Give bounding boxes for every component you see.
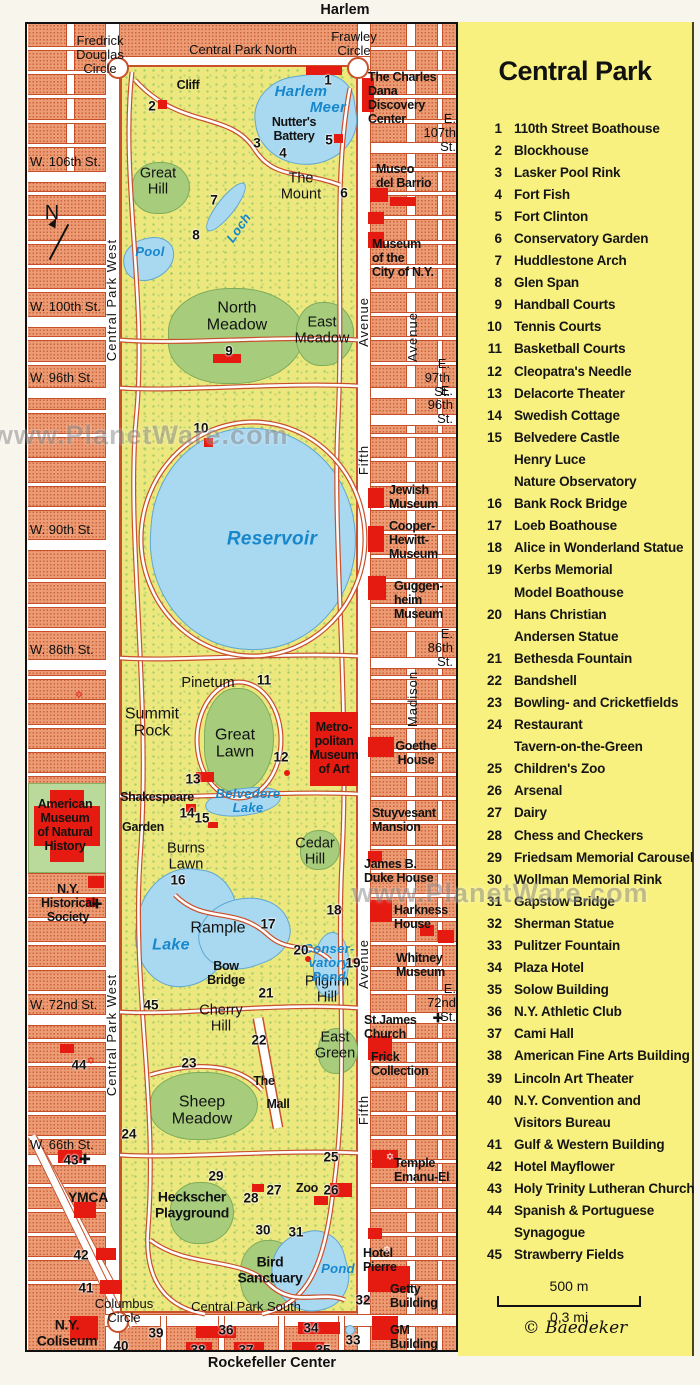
legend-item: 27Dairy bbox=[472, 802, 686, 824]
legend-item-number: 33 bbox=[472, 938, 502, 953]
planetware-watermark: www.PlanetWare.com bbox=[0, 420, 289, 451]
cross-street-east bbox=[371, 387, 456, 399]
legend-item-number: 42 bbox=[472, 1159, 502, 1174]
legend-item-label: Andersen Statue bbox=[514, 629, 618, 644]
poi-number-marker: 29 bbox=[208, 1169, 223, 1184]
cross-street-west bbox=[28, 336, 106, 341]
legend-item: 12Cleopatra's Needle bbox=[472, 360, 686, 382]
cross-street-west bbox=[28, 288, 106, 293]
legend-item-continuation: Visitors Bureau bbox=[472, 1111, 686, 1133]
cross-street-west bbox=[28, 699, 106, 704]
cross-street-west bbox=[28, 1111, 106, 1116]
cross-street-west bbox=[28, 1014, 106, 1026]
legend-item: 28Chess and Checkers bbox=[472, 824, 686, 846]
legend-item-label: Henry Luce bbox=[514, 452, 586, 467]
red-building bbox=[158, 100, 167, 109]
legend-item-label: Dairy bbox=[514, 805, 547, 820]
cross-street-east bbox=[371, 772, 456, 777]
legend-item-label: Tennis Courts bbox=[514, 319, 601, 334]
red-building bbox=[50, 790, 84, 862]
poi-number-marker: 28 bbox=[243, 1191, 258, 1206]
poi-number-marker: 6 bbox=[340, 186, 348, 201]
cross-street-west bbox=[28, 1280, 106, 1285]
legend-item-label: Model Boathouse bbox=[514, 585, 624, 600]
poi-number-marker: 18 bbox=[326, 903, 341, 918]
cross-street-west bbox=[28, 1135, 106, 1140]
legend-item-number: 27 bbox=[472, 805, 502, 820]
cross-street-west bbox=[28, 748, 106, 753]
legend-item-label: Huddlestone Arch bbox=[514, 253, 627, 268]
poi-number-marker: 38 bbox=[190, 1343, 205, 1353]
legend-item-label: Alice in Wonderland Statue bbox=[514, 540, 683, 555]
poi-number-marker: 7 bbox=[210, 193, 218, 208]
cross-street-east bbox=[371, 94, 456, 99]
planetware-watermark: www.PlanetWare.com bbox=[352, 878, 649, 909]
cross-street-east bbox=[371, 554, 456, 559]
cross-street-east bbox=[371, 288, 456, 293]
legend-item-label: Spanish & Portuguese bbox=[514, 1203, 654, 1218]
cross-street-east bbox=[371, 724, 456, 729]
cross-street-west bbox=[28, 966, 106, 971]
legend-item: 40N.Y. Convention and bbox=[472, 1089, 686, 1111]
legend-item-number: 9 bbox=[472, 297, 502, 312]
legend-item-number: 20 bbox=[472, 607, 502, 622]
legend-item-list: 1110th Street Boathouse2Blockhouse3Laske… bbox=[472, 117, 686, 1266]
legend-item-label: Arsenal bbox=[514, 783, 562, 798]
legend-item-number: 25 bbox=[472, 761, 502, 776]
church-cross-icon: ✚ bbox=[433, 1012, 444, 1025]
legend-item: 41Gulf & Western Building bbox=[472, 1133, 686, 1155]
legend-item-number: 3 bbox=[472, 165, 502, 180]
legend-item: 33Pulitzer Fountain bbox=[472, 934, 686, 956]
legend-item-number: 19 bbox=[472, 562, 502, 577]
cross-street-west bbox=[28, 772, 106, 777]
poi-number-marker: 44 bbox=[71, 1058, 86, 1073]
cross-street-west bbox=[28, 1038, 106, 1043]
south-block-street bbox=[278, 1316, 285, 1350]
legend-item: 16Bank Rock Bridge bbox=[472, 493, 686, 515]
legend-item-number: 15 bbox=[472, 430, 502, 445]
legend-item: 36N.Y. Athletic Club bbox=[472, 1001, 686, 1023]
legend-item-label: Conservatory Garden bbox=[514, 231, 648, 246]
legend-item-number: 32 bbox=[472, 916, 502, 931]
cross-street-east bbox=[371, 361, 456, 366]
legend-item-number: 1 bbox=[472, 121, 502, 136]
legend-item-label: Glen Span bbox=[514, 275, 579, 290]
cross-street-west bbox=[28, 240, 106, 245]
cross-street-east bbox=[371, 845, 456, 850]
red-building bbox=[368, 1228, 382, 1239]
legend-item: 7Huddlestone Arch bbox=[472, 250, 686, 272]
poi-number-marker: 9 bbox=[225, 344, 233, 359]
madison-avenue bbox=[406, 24, 416, 1350]
legend-item: 6Conservatory Garden bbox=[472, 227, 686, 249]
legend-item-label: Synagogue bbox=[514, 1225, 585, 1240]
legend-item-number: 24 bbox=[472, 717, 502, 732]
cross-street-west bbox=[28, 724, 106, 729]
legend-item-label: Strawberry Fields bbox=[514, 1247, 624, 1262]
red-building bbox=[368, 576, 386, 600]
cross-street-east bbox=[371, 414, 456, 426]
cross-street-west bbox=[28, 1183, 106, 1188]
cross-street-east bbox=[371, 796, 456, 801]
red-building bbox=[60, 1044, 74, 1053]
legend-item: 45Strawberry Fields bbox=[472, 1244, 686, 1266]
legend-item-label: Loeb Boathouse bbox=[514, 518, 617, 533]
legend-item-number: 10 bbox=[472, 319, 502, 334]
cross-street-west bbox=[28, 409, 106, 414]
legend-item: 32Sherman Statue bbox=[472, 912, 686, 934]
legend-item-number: 40 bbox=[472, 1093, 502, 1108]
poi-number-marker: 27 bbox=[266, 1183, 281, 1198]
scale-bar-line bbox=[497, 1296, 641, 1307]
cross-street-west bbox=[28, 70, 106, 75]
red-building bbox=[368, 1036, 392, 1060]
cross-street-east bbox=[371, 1208, 456, 1213]
red-building bbox=[334, 134, 343, 143]
columbus-circle bbox=[107, 1311, 129, 1333]
legend-item-label: Hans Christian bbox=[514, 607, 606, 622]
legend-panel: Central Park 1110th Street Boathouse2Blo… bbox=[458, 22, 694, 1356]
cross-street-east bbox=[371, 312, 456, 317]
poi-number-marker: 43 bbox=[63, 1153, 78, 1168]
red-building bbox=[368, 526, 384, 552]
cross-street-west bbox=[28, 387, 106, 399]
poi-number-marker: 26 bbox=[323, 1183, 338, 1198]
legend-item-number: 17 bbox=[472, 518, 502, 533]
cross-street-west bbox=[28, 990, 106, 995]
cross-street-west bbox=[28, 627, 106, 632]
legend-item-label: N.Y. Convention and bbox=[514, 1093, 641, 1108]
legend-item: 8Glen Span bbox=[472, 272, 686, 294]
legend-item: 26Arsenal bbox=[472, 780, 686, 802]
poi-number-marker: 40 bbox=[113, 1339, 128, 1353]
poi-number-marker: 17 bbox=[260, 917, 275, 932]
frederick-douglass-circle bbox=[107, 57, 129, 79]
legend-item: 9Handball Courts bbox=[472, 294, 686, 316]
red-building bbox=[74, 1202, 96, 1218]
cross-street-east bbox=[371, 966, 456, 971]
poi-number-marker: 4 bbox=[279, 146, 287, 161]
cross-street-east bbox=[371, 603, 456, 608]
legend-item-number: 44 bbox=[472, 1203, 502, 1218]
red-building bbox=[368, 1266, 410, 1292]
legend-item: 4Fort Fish bbox=[472, 183, 686, 205]
red-building bbox=[368, 851, 382, 862]
legend-item-label: Friedsam Memorial Carousel bbox=[514, 850, 693, 865]
poi-number-marker: 14 bbox=[179, 806, 194, 821]
red-building bbox=[100, 1280, 122, 1294]
legend-item-continuation: Tavern-on-the-Green bbox=[472, 736, 686, 758]
legend-item-label: Restaurant bbox=[514, 717, 583, 732]
legend-item: 5Fort Clinton bbox=[472, 205, 686, 227]
synagogue-star-icon: ✡ bbox=[383, 1246, 391, 1256]
poi-number-marker: 8 bbox=[192, 228, 200, 243]
red-building bbox=[368, 488, 384, 508]
red-building bbox=[96, 1248, 116, 1260]
legend-item-number: 22 bbox=[472, 673, 502, 688]
cross-street-west bbox=[28, 361, 106, 366]
cross-street-east bbox=[371, 675, 456, 680]
legend-item-continuation: Henry Luce bbox=[472, 448, 686, 470]
legend-item-number: 26 bbox=[472, 783, 502, 798]
cross-street-east bbox=[371, 264, 456, 269]
red-building bbox=[88, 876, 104, 888]
legend-item-number: 29 bbox=[472, 850, 502, 865]
poi-number-marker: 20 bbox=[293, 943, 308, 958]
poi-number-marker: 22 bbox=[251, 1033, 266, 1048]
red-building bbox=[368, 232, 384, 248]
baedeker-credit: © Baedeker bbox=[458, 1318, 692, 1338]
legend-item-label: Kerbs Memorial bbox=[514, 562, 612, 577]
legend-item-label: Visitors Bureau bbox=[514, 1115, 611, 1130]
cross-street-west bbox=[28, 215, 106, 220]
cross-street-east bbox=[371, 457, 456, 462]
cross-street-west bbox=[28, 119, 106, 124]
legend-item: 37Cami Hall bbox=[472, 1023, 686, 1045]
legend-item-number: 36 bbox=[472, 1004, 502, 1019]
poi-number-marker: 31 bbox=[288, 1225, 303, 1240]
cross-street-east bbox=[371, 482, 456, 487]
legend-item-number: 13 bbox=[472, 386, 502, 401]
cross-street-east bbox=[371, 627, 456, 632]
legend-item-label: American Fine Arts Building bbox=[514, 1048, 690, 1063]
legend-item: 29Friedsam Memorial Carousel bbox=[472, 846, 686, 868]
legend-item-number: 21 bbox=[472, 651, 502, 666]
red-building bbox=[368, 212, 384, 224]
legend-item-label: Fort Fish bbox=[514, 187, 570, 202]
red-building bbox=[310, 712, 358, 786]
legend-item-continuation: Model Boathouse bbox=[472, 581, 686, 603]
red-building bbox=[372, 1316, 398, 1340]
poi-number-marker: 15 bbox=[194, 811, 209, 826]
red-building bbox=[370, 188, 388, 202]
legend-item: 34Plaza Hotel bbox=[472, 957, 686, 979]
legend-item-label: Plaza Hotel bbox=[514, 960, 584, 975]
legend-item: 44Spanish & Portuguese bbox=[472, 1200, 686, 1222]
legend-item-number: 39 bbox=[472, 1071, 502, 1086]
cross-street-east bbox=[371, 820, 456, 825]
legend-item-label: Lincoln Art Theater bbox=[514, 1071, 633, 1086]
poi-number-marker: 35 bbox=[315, 1343, 330, 1353]
cross-street-west bbox=[28, 482, 106, 487]
legend-item: 14Swedish Cottage bbox=[472, 404, 686, 426]
legend-item: 38American Fine Arts Building bbox=[472, 1045, 686, 1067]
legend-item: 24Restaurant bbox=[472, 714, 686, 736]
scale-metric-label: 500 m bbox=[494, 1278, 644, 1294]
cross-street-west bbox=[28, 191, 106, 196]
cross-street-west bbox=[28, 46, 106, 51]
legend-item: 10Tennis Courts bbox=[472, 316, 686, 338]
legend-item: 35Solow Building bbox=[472, 979, 686, 1001]
cross-street-east bbox=[371, 1232, 456, 1237]
poi-number-marker: 23 bbox=[181, 1056, 196, 1071]
cross-street-east bbox=[371, 336, 456, 341]
legend-item-number: 12 bbox=[472, 364, 502, 379]
poi-number-marker: 33 bbox=[345, 1333, 360, 1348]
legend-item-number: 43 bbox=[472, 1181, 502, 1196]
synagogue-star-icon: ✡ bbox=[87, 1057, 95, 1067]
poi-number-marker: 39 bbox=[148, 1326, 163, 1341]
legend-item-label: Tavern-on-the-Green bbox=[514, 739, 643, 754]
legend-item-number: 7 bbox=[472, 253, 502, 268]
cross-street-west bbox=[28, 316, 106, 328]
red-marker-dot bbox=[284, 770, 290, 776]
cross-street-east bbox=[371, 1183, 456, 1188]
legend-item-number: 6 bbox=[472, 231, 502, 246]
cross-street-west bbox=[28, 917, 106, 922]
legend-item-label: Delacorte Theater bbox=[514, 386, 625, 401]
poi-number-marker: 42 bbox=[73, 1248, 88, 1263]
cross-street-west bbox=[28, 143, 106, 148]
legend-item-label: Chess and Checkers bbox=[514, 828, 643, 843]
harlem-label: Harlem bbox=[320, 2, 369, 18]
city-blocks-top bbox=[120, 24, 358, 58]
legend-item-label: N.Y. Athletic Club bbox=[514, 1004, 622, 1019]
cross-street-east bbox=[371, 70, 456, 75]
cross-street-east bbox=[371, 1087, 456, 1092]
central-park-map-page: Harlem Rockefeller Center NW. 106th St.W… bbox=[0, 0, 700, 1385]
poi-number-marker: 36 bbox=[218, 1323, 233, 1338]
legend-item: 15Belvedere Castle bbox=[472, 426, 686, 448]
legend-item-label: 110th Street Boathouse bbox=[514, 121, 660, 136]
legend-item: 19Kerbs Memorial bbox=[472, 559, 686, 581]
legend-item-label: Belvedere Castle bbox=[514, 430, 620, 445]
legend-item-label: Bethesda Fountain bbox=[514, 651, 632, 666]
legend-item-label: Children's Zoo bbox=[514, 761, 605, 776]
central-park-west-avenue bbox=[105, 24, 120, 1350]
poi-number-marker: 13 bbox=[185, 772, 200, 787]
legend-item: 3Lasker Pool Rink bbox=[472, 161, 686, 183]
cross-street-east bbox=[371, 990, 456, 995]
legend-item: 17Loeb Boathouse bbox=[472, 515, 686, 537]
frawley-circle bbox=[347, 57, 369, 79]
poi-number-marker: 3 bbox=[253, 136, 261, 151]
cross-street-west bbox=[28, 457, 106, 462]
legend-item-number: 34 bbox=[472, 960, 502, 975]
synagogue-star-icon: ✡ bbox=[75, 691, 83, 701]
legend-item-label: Fort Clinton bbox=[514, 209, 588, 224]
map-canvas: NW. 106th St.W. 100th St.W. 96th St.W. 9… bbox=[25, 22, 458, 1352]
legend-item: 13Delacorte Theater bbox=[472, 382, 686, 404]
cross-street-west bbox=[28, 941, 106, 946]
legend-item-label: Bowling- and Cricketfields bbox=[514, 695, 678, 710]
legend-item-label: Bank Rock Bridge bbox=[514, 496, 627, 511]
cross-street-east bbox=[371, 657, 456, 669]
cross-street-west bbox=[28, 578, 106, 583]
legend-item: 21Bethesda Fountain bbox=[472, 647, 686, 669]
legend-item-number: 35 bbox=[472, 982, 502, 997]
legend-item-label: Gulf & Western Building bbox=[514, 1137, 664, 1152]
poi-number-marker: 32 bbox=[355, 1293, 370, 1308]
cross-street-west bbox=[28, 264, 106, 269]
poi-number-marker: 2 bbox=[148, 99, 156, 114]
red-building bbox=[390, 197, 416, 206]
cross-street-east bbox=[371, 46, 456, 51]
legend-item: 20Hans Christian bbox=[472, 603, 686, 625]
legend-item: 42Hotel Mayflower bbox=[472, 1155, 686, 1177]
poi-number-marker: 11 bbox=[257, 673, 271, 688]
legend-item-number: 2 bbox=[472, 143, 502, 158]
legend-item-number: 18 bbox=[472, 540, 502, 555]
red-building bbox=[438, 930, 454, 943]
cross-street-west bbox=[28, 506, 106, 511]
legend-item-number: 38 bbox=[472, 1048, 502, 1063]
cross-street-east bbox=[371, 1111, 456, 1116]
cross-street-west bbox=[28, 675, 106, 680]
legend-item: 25Children's Zoo bbox=[472, 758, 686, 780]
cross-street-east bbox=[371, 1256, 456, 1261]
cross-street-east bbox=[371, 119, 456, 124]
cross-street-west bbox=[28, 171, 106, 183]
cross-street-west bbox=[28, 539, 106, 551]
poi-number-marker: 1 bbox=[324, 73, 332, 88]
legend-item: 43Holy Trinity Lutheran Church bbox=[472, 1178, 686, 1200]
legend-item: 1110th Street Boathouse bbox=[472, 117, 686, 139]
legend-item-number: 11 bbox=[472, 341, 502, 356]
legend-item-label: Cami Hall bbox=[514, 1026, 574, 1041]
red-building bbox=[368, 737, 394, 757]
legend-item-number: 45 bbox=[472, 1247, 502, 1262]
legend-item-label: Cleopatra's Needle bbox=[514, 364, 631, 379]
legend-title: Central Park bbox=[458, 56, 692, 87]
cross-street-west bbox=[28, 1087, 106, 1092]
park-avenue bbox=[437, 24, 443, 1350]
legend-item-number: 4 bbox=[472, 187, 502, 202]
cross-street-west bbox=[28, 94, 106, 99]
cross-street-west bbox=[28, 659, 106, 671]
legend-item: 18Alice in Wonderland Statue bbox=[472, 537, 686, 559]
red-building bbox=[362, 78, 374, 112]
legend-item-number: 14 bbox=[472, 408, 502, 423]
cross-street-east bbox=[371, 1062, 456, 1067]
legend-item-number: 5 bbox=[472, 209, 502, 224]
cross-street-west bbox=[28, 1232, 106, 1237]
synagogue-star-icon: ✡ bbox=[386, 1153, 394, 1163]
church-cross-icon: ✚ bbox=[79, 1152, 91, 1166]
legend-item: 22Bandshell bbox=[472, 669, 686, 691]
legend-item-continuation: Synagogue bbox=[472, 1222, 686, 1244]
cross-street-east bbox=[371, 1135, 456, 1140]
rockefeller-center-label: Rockefeller Center bbox=[208, 1355, 336, 1371]
cross-street-east bbox=[371, 869, 456, 874]
legend-item-label: Solow Building bbox=[514, 982, 609, 997]
legend-item-number: 16 bbox=[472, 496, 502, 511]
legend-item-number: 8 bbox=[472, 275, 502, 290]
poi-number-marker: 30 bbox=[255, 1223, 270, 1238]
legend-item-label: Bandshell bbox=[514, 673, 577, 688]
cross-street-east bbox=[371, 699, 456, 704]
church-cross-icon: ✚ bbox=[92, 898, 103, 911]
poi-number-marker: 37 bbox=[238, 1343, 253, 1353]
legend-item-continuation: Andersen Statue bbox=[472, 625, 686, 647]
poi-number-marker: 19 bbox=[345, 956, 360, 971]
poi-number-marker: 25 bbox=[323, 1150, 338, 1165]
cross-street-east bbox=[371, 433, 456, 438]
legend-item: 23Bowling- and Cricketfields bbox=[472, 691, 686, 713]
poi-number-marker: 45 bbox=[143, 998, 158, 1013]
legend-item-label: Pulitzer Fountain bbox=[514, 938, 620, 953]
poi-number-marker: 5 bbox=[325, 133, 333, 148]
legend-item-label: Handball Courts bbox=[514, 297, 615, 312]
legend-item-number: 23 bbox=[472, 695, 502, 710]
legend-item-label: Holy Trinity Lutheran Church bbox=[514, 1181, 694, 1196]
poi-number-marker: 41 bbox=[78, 1281, 93, 1296]
poi-number-marker: 34 bbox=[303, 1321, 318, 1336]
poi-number-marker: 16 bbox=[170, 873, 185, 888]
legend-item-label: Sherman Statue bbox=[514, 916, 614, 931]
legend-item-label: Blockhouse bbox=[514, 143, 589, 158]
